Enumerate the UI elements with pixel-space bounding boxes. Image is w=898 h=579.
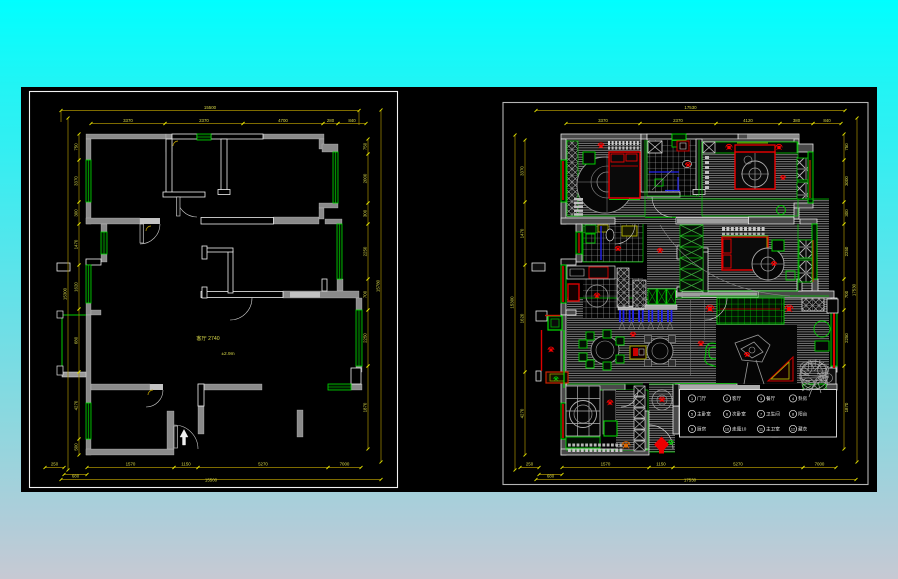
svg-text:15300: 15300 [63,287,68,300]
svg-text:750: 750 [363,142,368,150]
svg-text:门厅: 门厅 [697,395,707,402]
svg-text:客厅 2740: 客厅 2740 [196,334,219,342]
svg-text:700: 700 [363,290,368,298]
svg-text:5: 5 [691,413,693,417]
svg-text:11: 11 [759,428,763,432]
svg-text:1570: 1570 [601,462,611,467]
svg-text:1570: 1570 [126,462,136,467]
svg-text:7000: 7000 [340,462,350,467]
svg-text:750: 750 [74,143,79,151]
svg-text:700: 700 [844,290,849,298]
svg-text:3000: 3000 [844,176,849,186]
svg-text:卫生间: 卫生间 [766,411,780,418]
svg-text:4270: 4270 [74,400,79,410]
svg-text:2000: 2000 [363,173,368,183]
svg-text:680: 680 [74,336,79,344]
svg-text:1150: 1150 [181,462,191,467]
svg-text:客厅: 客厅 [732,395,742,402]
svg-text:12: 12 [791,428,795,432]
svg-text:4120: 4120 [743,118,753,123]
svg-text:6: 6 [726,413,728,417]
svg-text:2250: 2250 [844,333,849,343]
svg-text:7000: 7000 [815,462,825,467]
svg-text:250: 250 [526,462,534,467]
svg-text:2250: 2250 [363,246,368,256]
svg-text:15300: 15300 [510,296,515,309]
svg-text:15500: 15500 [204,105,217,110]
svg-text:17530: 17530 [684,105,697,110]
svg-text:15780: 15780 [376,279,381,292]
svg-text:17530: 17530 [852,283,857,296]
svg-text:主卫室: 主卫室 [766,426,780,432]
svg-text:2: 2 [726,397,728,401]
svg-text:3370: 3370 [598,118,608,123]
svg-text:主卧室: 主卧室 [697,411,711,418]
svg-text:1470: 1470 [74,239,79,249]
svg-text:1870: 1870 [363,402,368,412]
svg-text:1150: 1150 [656,462,666,467]
svg-text:±2.9m: ±2.9m [221,351,234,357]
svg-text:4: 4 [792,397,794,401]
svg-text:1870: 1870 [844,402,849,412]
svg-text:680: 680 [72,474,80,479]
svg-text:300: 300 [363,209,368,217]
svg-text:10: 10 [725,428,729,432]
svg-text:藏衣: 藏衣 [798,426,808,433]
svg-text:4700: 4700 [278,118,288,123]
svg-text:3: 3 [760,397,762,401]
svg-text:840: 840 [348,118,356,123]
svg-text:4270: 4270 [520,408,525,418]
svg-text:3370: 3370 [74,176,79,186]
svg-text:7: 7 [760,413,762,417]
svg-text:250: 250 [51,462,59,467]
svg-text:3370: 3370 [520,166,525,176]
svg-text:2250: 2250 [363,333,368,343]
svg-text:阳台: 阳台 [798,411,808,418]
svg-text:5270: 5270 [258,462,268,467]
svg-text:走廆10: 走廆10 [732,426,747,433]
svg-text:2250: 2250 [844,246,849,256]
svg-text:750: 750 [844,143,849,151]
svg-text:3370: 3370 [123,118,133,123]
svg-text:1620: 1620 [520,313,525,323]
svg-text:380: 380 [793,118,801,123]
svg-text:2370: 2370 [199,118,209,123]
svg-text:餐厅: 餐厅 [766,395,776,402]
svg-text:500: 500 [74,443,79,451]
svg-text:厨房: 厨房 [697,426,707,433]
svg-text:5270: 5270 [733,462,743,467]
svg-text:840: 840 [823,118,831,123]
svg-text:1470: 1470 [520,228,525,238]
svg-text:280: 280 [327,118,335,123]
svg-text:9: 9 [691,428,693,432]
svg-text:17530: 17530 [684,477,697,482]
svg-text:300: 300 [844,209,849,217]
svg-text:680: 680 [547,474,555,479]
svg-text:15500: 15500 [205,477,218,482]
svg-text:1: 1 [691,397,693,401]
svg-text:2370: 2370 [673,118,683,123]
svg-text:次卧室: 次卧室 [732,411,746,418]
svg-text:300: 300 [74,209,79,217]
svg-text:卦房: 卦房 [798,395,808,402]
svg-text:8: 8 [792,413,794,417]
svg-text:1620: 1620 [74,282,79,292]
